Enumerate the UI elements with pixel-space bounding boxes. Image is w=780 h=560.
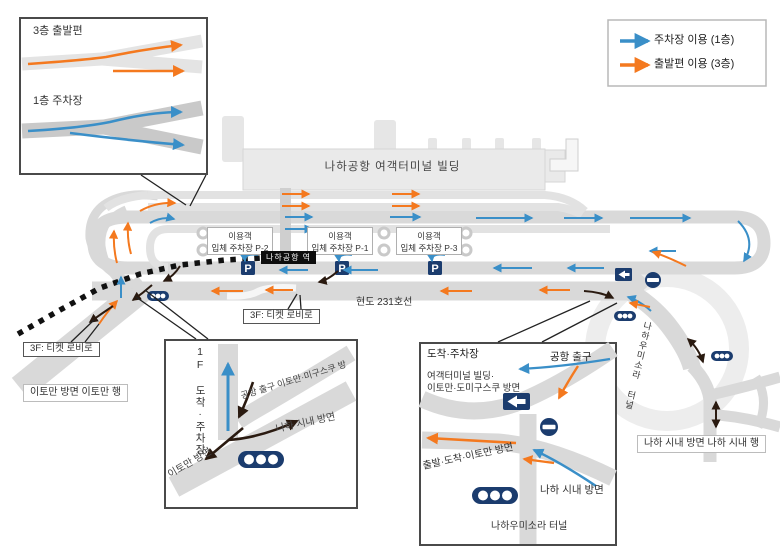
pointer-line xyxy=(136,297,196,339)
flow-arrow-orange xyxy=(114,231,117,263)
road-branch-se xyxy=(706,414,780,427)
ticket-lobby-callout-center: 3F: 티켓 로비로 xyxy=(243,309,320,324)
bl-arrival-parking-vertical-label: 1F 도착·주차장 xyxy=(194,346,206,456)
parking-letter: P xyxy=(431,263,438,275)
br-arrival-parking-label: 도착·주차장 xyxy=(427,348,479,360)
parking-garage-p3-line1: 이용객 xyxy=(397,230,461,242)
traffic-light-icon xyxy=(238,451,284,468)
left-arrow-sign-icon xyxy=(615,268,632,281)
terminal-building xyxy=(222,116,578,190)
station-label: 나하공항 역 xyxy=(261,251,316,264)
traffic-light-icon xyxy=(614,311,636,321)
parking-garage-p1-line2: 입체 주차장 P-1 xyxy=(308,242,372,254)
inset-1f-parking-label: 1층 주차장 xyxy=(33,95,83,108)
br-naha-city-label: 나하 시내 방면 xyxy=(540,484,604,496)
parking-garage-p2-line1: 이용객 xyxy=(208,230,272,242)
route-231-label: 현도 231호선 xyxy=(356,297,412,309)
jet-bridge xyxy=(222,116,244,162)
road-itoman xyxy=(20,286,146,388)
airport-access-map: P P P xyxy=(0,0,780,560)
br-terminal-direction-line1: 여객터미널 빌딩· xyxy=(427,372,494,383)
terminal-building-label: 나하공항 여객터미널 빌딩 xyxy=(295,161,490,174)
parking-garage-p1: 이용객 입체 주차장 P-1 xyxy=(307,227,373,255)
naha-city-bound-label: 나하 시내 방면 나하 시내 행 xyxy=(637,435,766,453)
br-terminal-direction-line2: 이토만·도미구스쿠 방면 xyxy=(427,384,520,395)
no-entry-sign-icon xyxy=(645,272,661,288)
flow-arrow-orange xyxy=(128,223,131,254)
map-canvas: P P P xyxy=(0,0,780,560)
parking-entry-arrow xyxy=(432,255,445,261)
parking-garage-p1-line1: 이용객 xyxy=(308,230,372,242)
flow-arrow-blue xyxy=(738,221,749,261)
inset-3f-departure-label: 3층 출발편 xyxy=(33,25,83,38)
road-inner-loop-end xyxy=(150,229,168,267)
tl-road-3f-straight xyxy=(102,59,202,67)
traffic-light-icon xyxy=(472,487,518,504)
parking-garage-p3: 이용객 입체 주차장 P-3 xyxy=(396,227,462,255)
road-branch-link xyxy=(756,377,764,427)
br-tunnel-label: 나하우미소라 터널 xyxy=(491,521,567,533)
legend-item-parking: 주차장 이용 (1층) xyxy=(654,34,734,47)
br-airport-exit-label: 공항 출구 xyxy=(550,351,592,363)
no-entry-sign-icon xyxy=(540,418,558,436)
parking-entry-arrow xyxy=(339,255,352,261)
pointer-line xyxy=(141,175,186,205)
ticket-lobby-callout-left: 3F: 티켓 로비로 xyxy=(23,342,100,357)
station-connector xyxy=(280,188,291,254)
legend-item-departure: 출발편 이용 (3층) xyxy=(654,58,734,71)
traffic-light-icon xyxy=(711,351,733,361)
pointer-line xyxy=(190,175,206,206)
road-tunnel-approach xyxy=(616,284,692,368)
left-arrow-sign-icon xyxy=(503,393,530,410)
parking-garage-p3-line2: 입체 주차장 P-3 xyxy=(397,242,461,254)
itoman-bound-label: 이토만 방면 이토만 행 xyxy=(23,384,128,402)
legend-box xyxy=(608,20,766,86)
pointer-line xyxy=(498,301,590,342)
parking-letter: P xyxy=(244,263,251,275)
